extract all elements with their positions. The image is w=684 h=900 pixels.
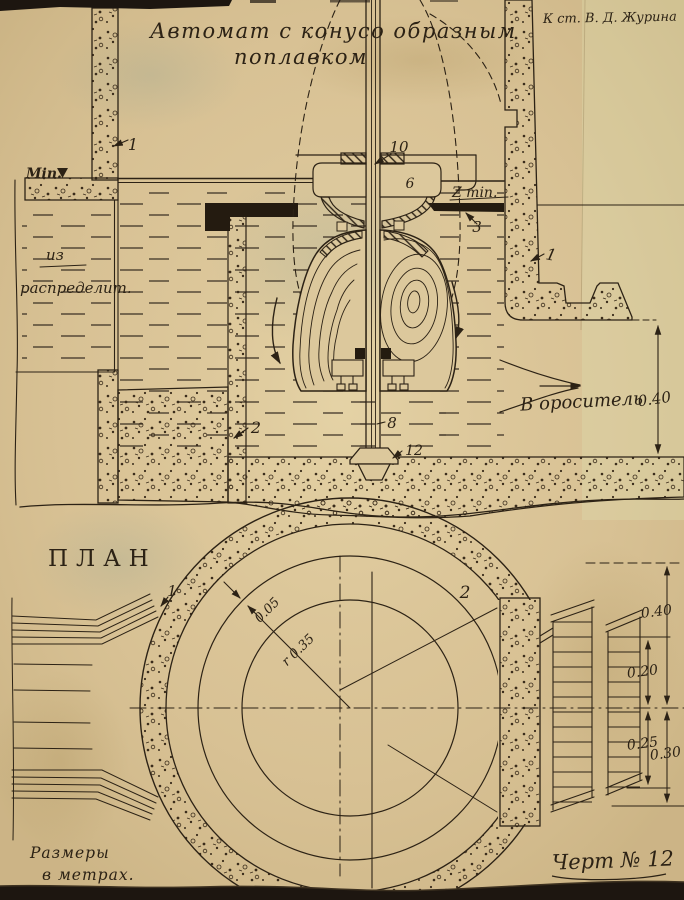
callout-seat: 3 bbox=[472, 218, 482, 236]
float-nut-left bbox=[355, 348, 365, 359]
units-note-line1: Размеры bbox=[29, 844, 110, 862]
valve-flange-left bbox=[341, 153, 366, 164]
callout-rod: 8 bbox=[387, 414, 397, 432]
valve-body-left bbox=[313, 163, 366, 197]
plan-callout-chamber: 2 bbox=[459, 583, 471, 603]
zmin-label: Z min. bbox=[451, 185, 497, 201]
inlet-source-label-1: из bbox=[46, 246, 64, 264]
credit-note: К ст. В. Д. Журина bbox=[542, 10, 677, 27]
plan-title: ПЛАН bbox=[48, 546, 157, 572]
callout-sump-wall: 2 bbox=[250, 418, 261, 437]
callout-valve-flange: 10 bbox=[389, 138, 409, 156]
callout-anchor: 12 bbox=[405, 443, 423, 459]
drawing-number: Черт № 12 bbox=[552, 846, 675, 874]
outlet-grooves bbox=[540, 600, 642, 812]
inlet-source-label-2: распределит. bbox=[20, 279, 132, 297]
units-note-line2: в метрах. bbox=[42, 866, 135, 884]
callout-valve-body: 6 bbox=[406, 176, 415, 192]
plan-right-wall-band bbox=[500, 598, 540, 826]
plan-callout-wall: 1 bbox=[167, 582, 177, 600]
blueprint-svg: Автомат с конусо образным поплавком К ст… bbox=[0, 0, 684, 900]
sump-block bbox=[118, 387, 228, 502]
drawing-title-line1: Автомат с конусо образным bbox=[148, 19, 517, 43]
zmin-level-bar bbox=[428, 203, 504, 212]
min-level-label: Min. bbox=[25, 166, 62, 182]
float-nut-right bbox=[381, 348, 391, 359]
callout-left-wall: 1 bbox=[128, 135, 138, 154]
drawing-title-line2: поплавком bbox=[234, 45, 368, 69]
drawing-sheet: Автомат с конусо образным поплавком К ст… bbox=[0, 0, 684, 900]
